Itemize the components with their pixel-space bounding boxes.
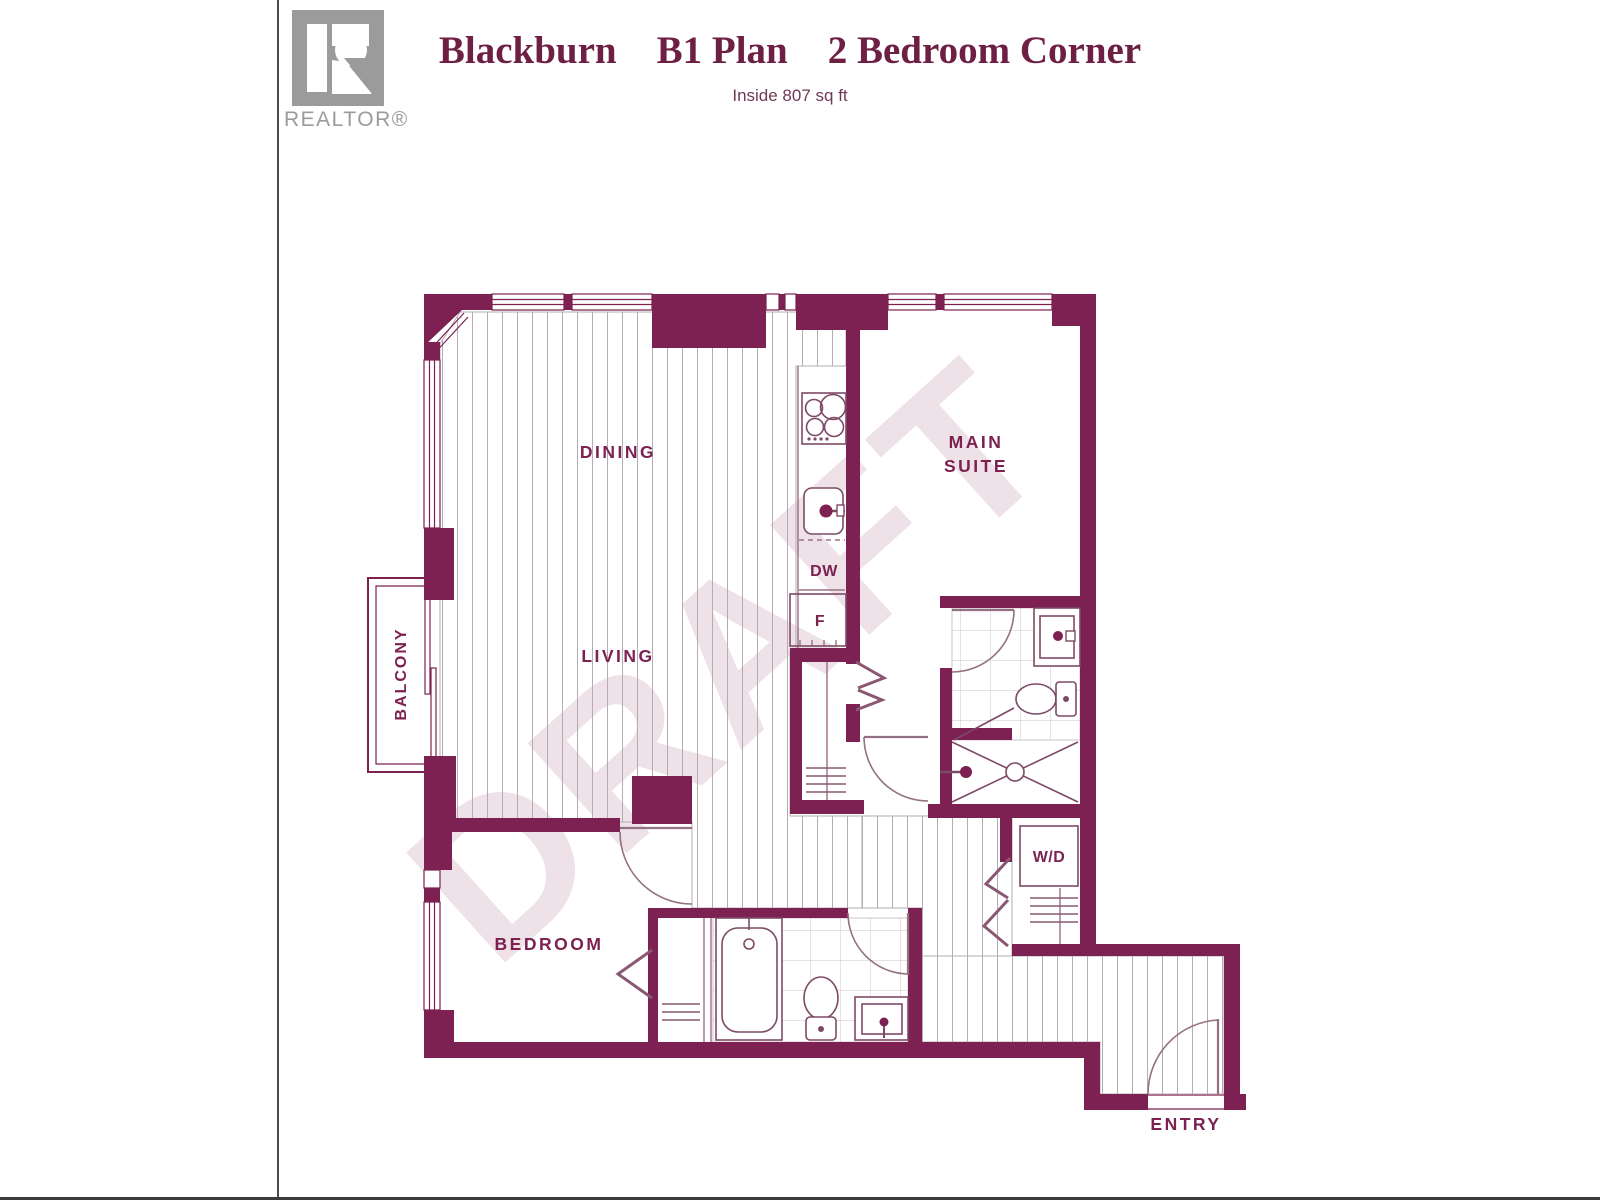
bath-sink-icon bbox=[855, 997, 908, 1040]
wall-block-below-balcony bbox=[424, 756, 456, 820]
window bbox=[572, 294, 652, 310]
wall-closet-bottom bbox=[790, 800, 864, 814]
wall-column-living bbox=[632, 776, 692, 824]
balcony-label: BALCONY bbox=[393, 627, 410, 720]
wall-suite-bottom bbox=[940, 596, 1080, 608]
window bbox=[424, 360, 440, 528]
ensuite-sink-icon bbox=[1034, 608, 1080, 666]
bedroom-closet-shelves bbox=[662, 918, 711, 1042]
toilet-icon bbox=[804, 977, 838, 1040]
wall-closet-left bbox=[790, 648, 802, 814]
bedroom-closet-doors bbox=[618, 950, 652, 998]
floor-plan-drawing: DRAFT bbox=[0, 0, 1600, 1200]
wall-entry-step bbox=[1084, 1042, 1100, 1110]
wall-bedroom-closet-divider bbox=[648, 918, 658, 1042]
wall-ensuite-left bbox=[940, 668, 952, 730]
wall-entry-bottom bbox=[1100, 1094, 1148, 1110]
living-label: LIVING bbox=[581, 646, 654, 666]
wall-pier bbox=[936, 294, 944, 310]
wall-corridor-top bbox=[1012, 944, 1240, 956]
wall-bottom-exterior bbox=[424, 1042, 1100, 1058]
wall-wd-stub bbox=[1000, 818, 1012, 862]
window bbox=[944, 294, 1052, 310]
window bbox=[888, 294, 936, 310]
entry-threshold bbox=[1148, 1094, 1224, 1110]
wall-block-left bbox=[424, 528, 454, 600]
wall-corner-bottom-left bbox=[424, 1010, 454, 1046]
bedroom-label: BEDROOM bbox=[495, 934, 604, 954]
floor-plan-page: REALTOR® Blackburn B1 Plan 2 Bedroom Cor… bbox=[0, 0, 1600, 1200]
kitchen-sink-icon bbox=[804, 488, 845, 534]
wall-ensuite-mid bbox=[940, 728, 1012, 740]
main-suite-label-line2: SUITE bbox=[944, 456, 1008, 476]
wall-pier bbox=[564, 294, 572, 310]
wall-right-exterior bbox=[1080, 294, 1096, 944]
main-suite-label-line1: MAIN bbox=[949, 432, 1004, 452]
entry-label: ENTRY bbox=[1150, 1114, 1221, 1134]
wall-bath-top bbox=[648, 908, 848, 918]
washer-dryer-label: W/D bbox=[1033, 849, 1066, 866]
entry-corridor-floor bbox=[922, 956, 1224, 1094]
balcony-sliding-door-panel bbox=[425, 598, 430, 694]
wall-pier bbox=[779, 294, 785, 310]
corridor-opening-floor bbox=[922, 944, 1012, 958]
wall-block-top-kitchen bbox=[796, 294, 888, 330]
wall-block-top-center bbox=[652, 294, 766, 348]
wall-bath-right bbox=[908, 908, 922, 1042]
closet-shelf-lines bbox=[806, 768, 846, 792]
dining-label: DINING bbox=[580, 442, 656, 462]
wall-kitchen-suite bbox=[846, 310, 860, 664]
wall-pier-bedroom bbox=[424, 888, 440, 902]
dishwasher-label: DW bbox=[810, 563, 838, 580]
wall-bedroom-corner bbox=[424, 818, 452, 870]
bathtub-icon bbox=[716, 918, 782, 1040]
wall-bedroom-top bbox=[424, 818, 620, 832]
fridge-label: F bbox=[815, 613, 825, 630]
vestibule-door bbox=[864, 737, 928, 801]
ensuite-toilet-icon bbox=[1016, 682, 1076, 716]
wall-entry-right bbox=[1224, 944, 1240, 1110]
wall-left bbox=[424, 342, 440, 360]
balcony-sliding-door-panel bbox=[431, 668, 436, 760]
window bbox=[492, 294, 564, 310]
wd-shelf-lines bbox=[1030, 888, 1078, 944]
cooktop-icon bbox=[802, 393, 846, 444]
wall-ensuite-bottom bbox=[928, 804, 1096, 818]
